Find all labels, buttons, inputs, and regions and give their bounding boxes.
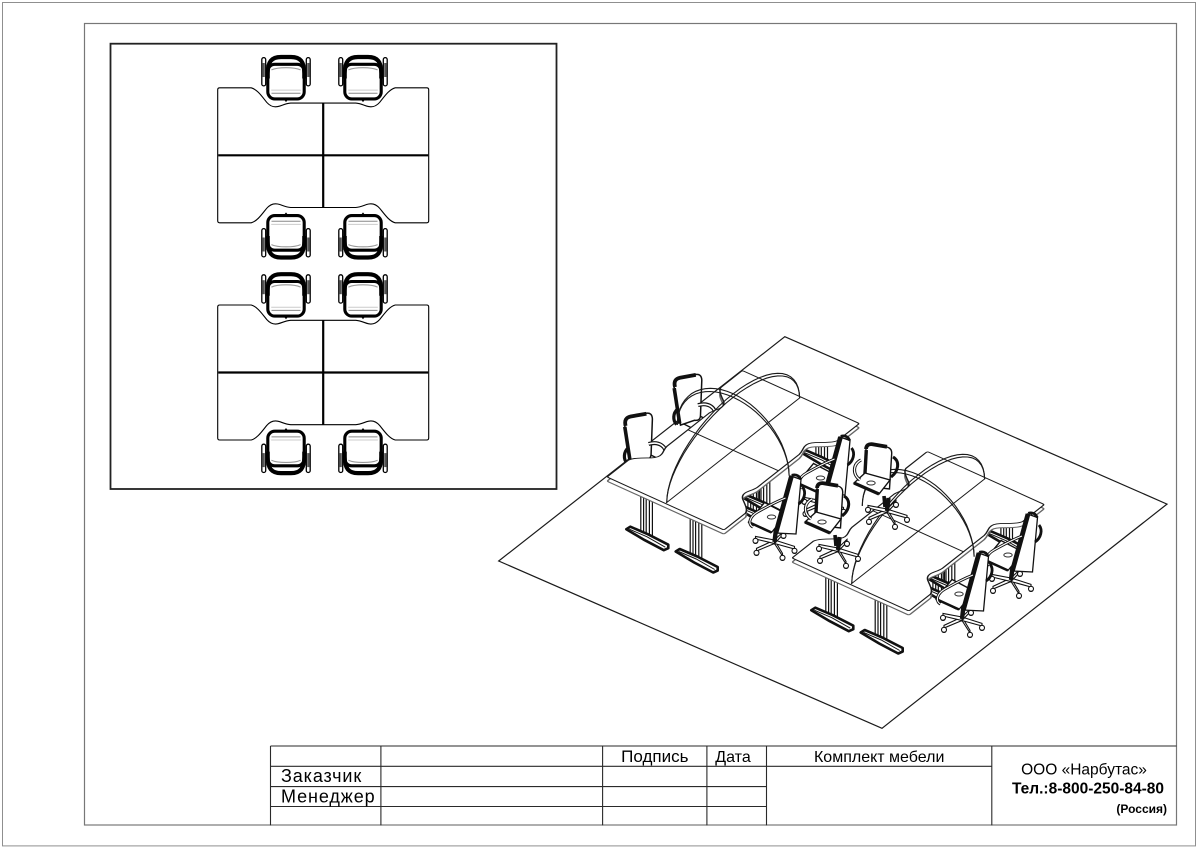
svg-text:Тел.:8-800-250-84-80: Тел.:8-800-250-84-80 (1012, 781, 1164, 798)
svg-text:Менеджер: Менеджер (281, 786, 376, 806)
svg-text:Дата: Дата (715, 749, 751, 766)
svg-text:(Россия): (Россия) (1116, 802, 1167, 816)
svg-text:Подпись: Подпись (621, 747, 688, 766)
svg-text:Комплект мебели: Комплект мебели (814, 749, 944, 766)
svg-text:Заказчик: Заказчик (281, 766, 362, 786)
svg-text:ООО «Нарбутас»: ООО «Нарбутас» (1021, 762, 1147, 779)
